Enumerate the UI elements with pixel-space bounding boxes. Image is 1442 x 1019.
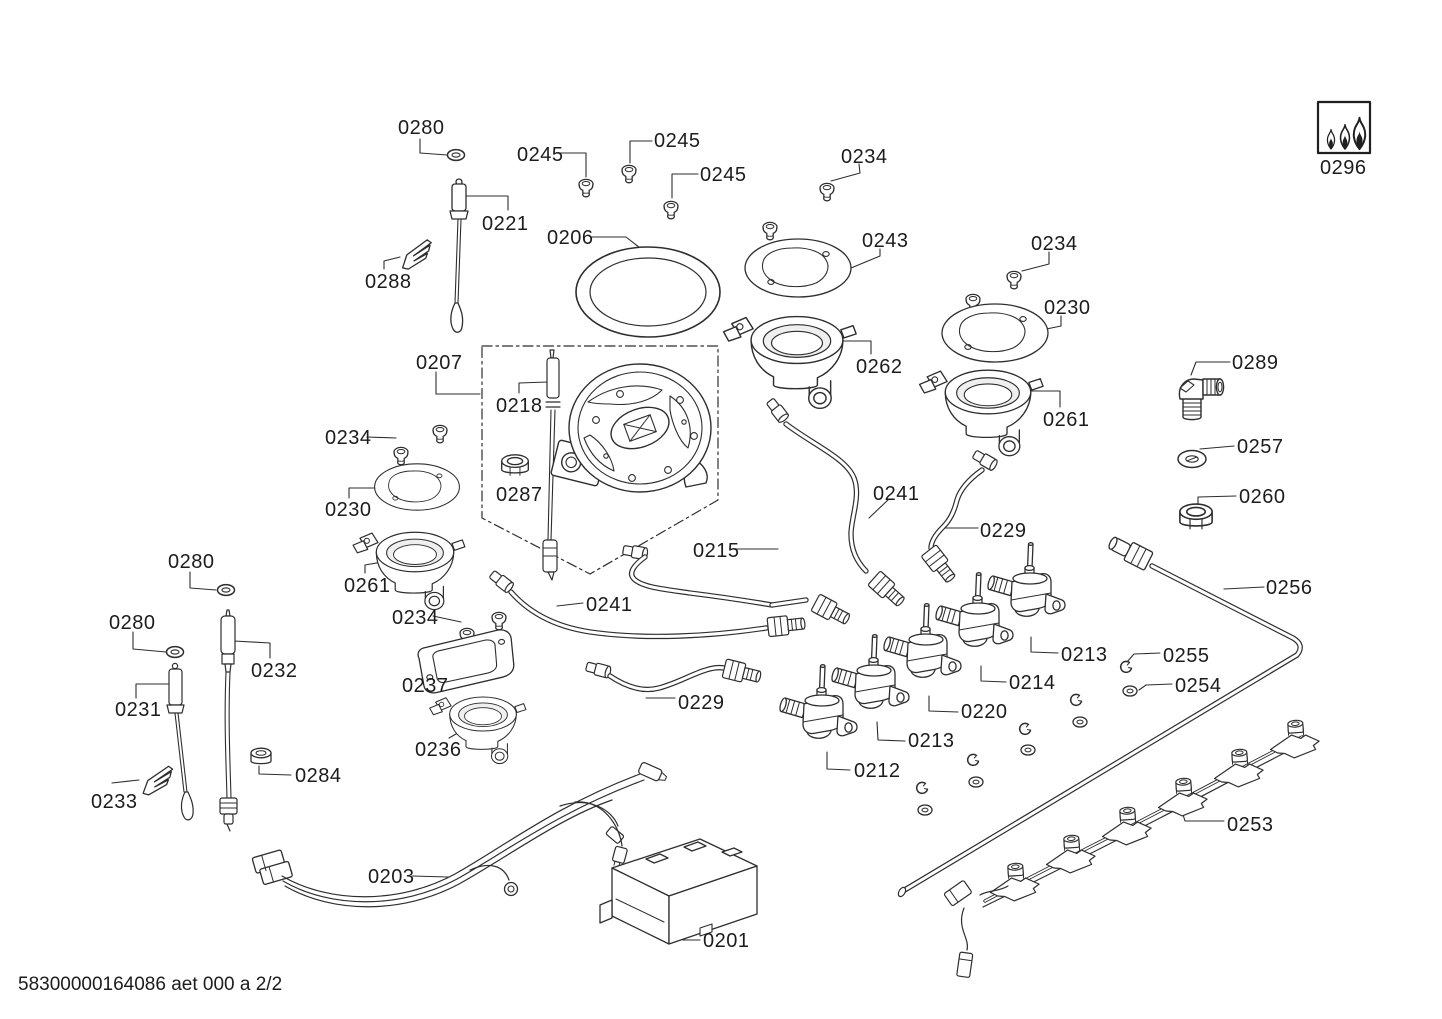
screw bbox=[763, 222, 777, 239]
part-label-0220: 0220 bbox=[961, 701, 1008, 724]
washer bbox=[1021, 745, 1035, 755]
seal-ring-0206 bbox=[576, 247, 720, 337]
part-label-0261: 0261 bbox=[344, 575, 391, 598]
part-label-0255: 0255 bbox=[1163, 645, 1210, 668]
part-label-0280: 0280 bbox=[109, 612, 156, 635]
part-label-0201: 0201 bbox=[703, 930, 750, 953]
part-label-0221: 0221 bbox=[482, 213, 529, 236]
part-label-0254: 0254 bbox=[1175, 675, 1222, 698]
part-label-0230: 0230 bbox=[325, 499, 372, 522]
gas-pipe-0229-lower bbox=[585, 659, 762, 690]
part-label-0256: 0256 bbox=[1266, 577, 1313, 600]
part-label-0284: 0284 bbox=[295, 765, 342, 788]
part-label-0288: 0288 bbox=[365, 271, 412, 294]
part-label-0232: 0232 bbox=[251, 660, 298, 683]
igniter-0231 bbox=[167, 663, 193, 819]
part-label-0213: 0213 bbox=[1061, 644, 1108, 667]
part-label-0218: 0218 bbox=[496, 395, 543, 418]
thermocouple-0232 bbox=[220, 610, 237, 831]
screw-0245 bbox=[622, 165, 636, 182]
part-label-0243: 0243 bbox=[862, 230, 909, 253]
part-label-0214: 0214 bbox=[1009, 672, 1056, 695]
part-label-0229: 0229 bbox=[980, 520, 1027, 543]
screw-0234 bbox=[820, 183, 834, 200]
part-label-0234: 0234 bbox=[392, 607, 439, 630]
part-label-0280: 0280 bbox=[168, 551, 215, 574]
diagram-artwork bbox=[0, 0, 1442, 1019]
screw-0234 bbox=[394, 447, 408, 464]
gas-pipe-0229-upper bbox=[921, 449, 998, 586]
circlip bbox=[1018, 722, 1031, 735]
burner-base-0207 bbox=[551, 364, 711, 492]
parts-diagram-canvas: 0280 0245 0245 0245 0234 0221 0206 0243 … bbox=[0, 0, 1442, 1019]
washer bbox=[969, 777, 983, 787]
part-label-0230: 0230 bbox=[1044, 297, 1091, 320]
part-label-0213: 0213 bbox=[908, 730, 955, 753]
screw-0245 bbox=[579, 179, 593, 196]
o-ring-0280 bbox=[218, 585, 235, 596]
part-label-0231: 0231 bbox=[115, 699, 162, 722]
part-label-0245: 0245 bbox=[700, 164, 747, 187]
screw-0245 bbox=[664, 201, 678, 218]
part-label-0229: 0229 bbox=[678, 692, 725, 715]
part-label-0234: 0234 bbox=[325, 427, 372, 450]
part-label-0207: 0207 bbox=[416, 352, 463, 375]
part-label-0241: 0241 bbox=[586, 594, 633, 617]
gasket-0243 bbox=[745, 239, 851, 297]
part-label-0245: 0245 bbox=[654, 130, 701, 153]
part-label-0234: 0234 bbox=[841, 146, 888, 169]
part-label-0253: 0253 bbox=[1227, 814, 1274, 837]
part-label-0280: 0280 bbox=[398, 117, 445, 140]
part-label-0215: 0215 bbox=[693, 540, 740, 563]
circlip bbox=[1069, 693, 1082, 706]
washer-0257 bbox=[1178, 451, 1206, 468]
washer bbox=[1073, 717, 1087, 727]
washer bbox=[918, 805, 932, 815]
part-label-0241: 0241 bbox=[873, 483, 920, 506]
circlip bbox=[966, 753, 979, 766]
nut-0287 bbox=[502, 455, 529, 476]
part-label-0236: 0236 bbox=[415, 739, 462, 762]
part-label-0262: 0262 bbox=[856, 356, 903, 379]
part-label-0203: 0203 bbox=[368, 866, 415, 889]
document-reference-footer: 58300000164086 aet 000 a 2/2 bbox=[18, 974, 282, 996]
screw-0234 bbox=[433, 425, 447, 442]
clip-0288 bbox=[397, 239, 437, 271]
circlip-0255 bbox=[1119, 660, 1132, 673]
burner-cup-0261 bbox=[920, 370, 1044, 456]
screw-0234 bbox=[1007, 271, 1021, 288]
part-label-0245: 0245 bbox=[517, 144, 564, 167]
part-label-0260: 0260 bbox=[1239, 486, 1286, 509]
burner-cup-0261 bbox=[353, 532, 465, 609]
part-label-0296: 0296 bbox=[1320, 157, 1367, 180]
flame-intensity-icon bbox=[1318, 102, 1370, 153]
circlip bbox=[915, 781, 928, 794]
gasket-0230 bbox=[942, 304, 1048, 362]
part-label-0257: 0257 bbox=[1237, 436, 1284, 459]
cap-0284 bbox=[251, 748, 271, 763]
o-ring-0280 bbox=[167, 647, 184, 658]
part-label-0237: 0237 bbox=[402, 675, 449, 698]
o-ring-0280 bbox=[448, 150, 465, 161]
burner-cup-0262 bbox=[724, 317, 857, 409]
gas-tap-0213 bbox=[987, 543, 1065, 617]
part-label-0206: 0206 bbox=[547, 227, 594, 250]
gasket-0230 bbox=[375, 464, 460, 510]
part-label-0289: 0289 bbox=[1232, 352, 1279, 375]
part-label-0212: 0212 bbox=[854, 760, 901, 783]
part-label-0234: 0234 bbox=[1031, 233, 1078, 256]
screw-0234 bbox=[492, 612, 506, 629]
injector-rail-0253 bbox=[944, 719, 1320, 978]
igniter-0221 bbox=[450, 179, 468, 332]
elbow-fitting-0289 bbox=[1179, 379, 1223, 420]
part-label-0233: 0233 bbox=[91, 791, 138, 814]
washer-0254 bbox=[1123, 686, 1137, 696]
clip-0233 bbox=[138, 765, 178, 796]
nut-0260 bbox=[1180, 504, 1212, 529]
part-label-0287: 0287 bbox=[496, 484, 543, 507]
part-label-0261: 0261 bbox=[1043, 409, 1090, 432]
